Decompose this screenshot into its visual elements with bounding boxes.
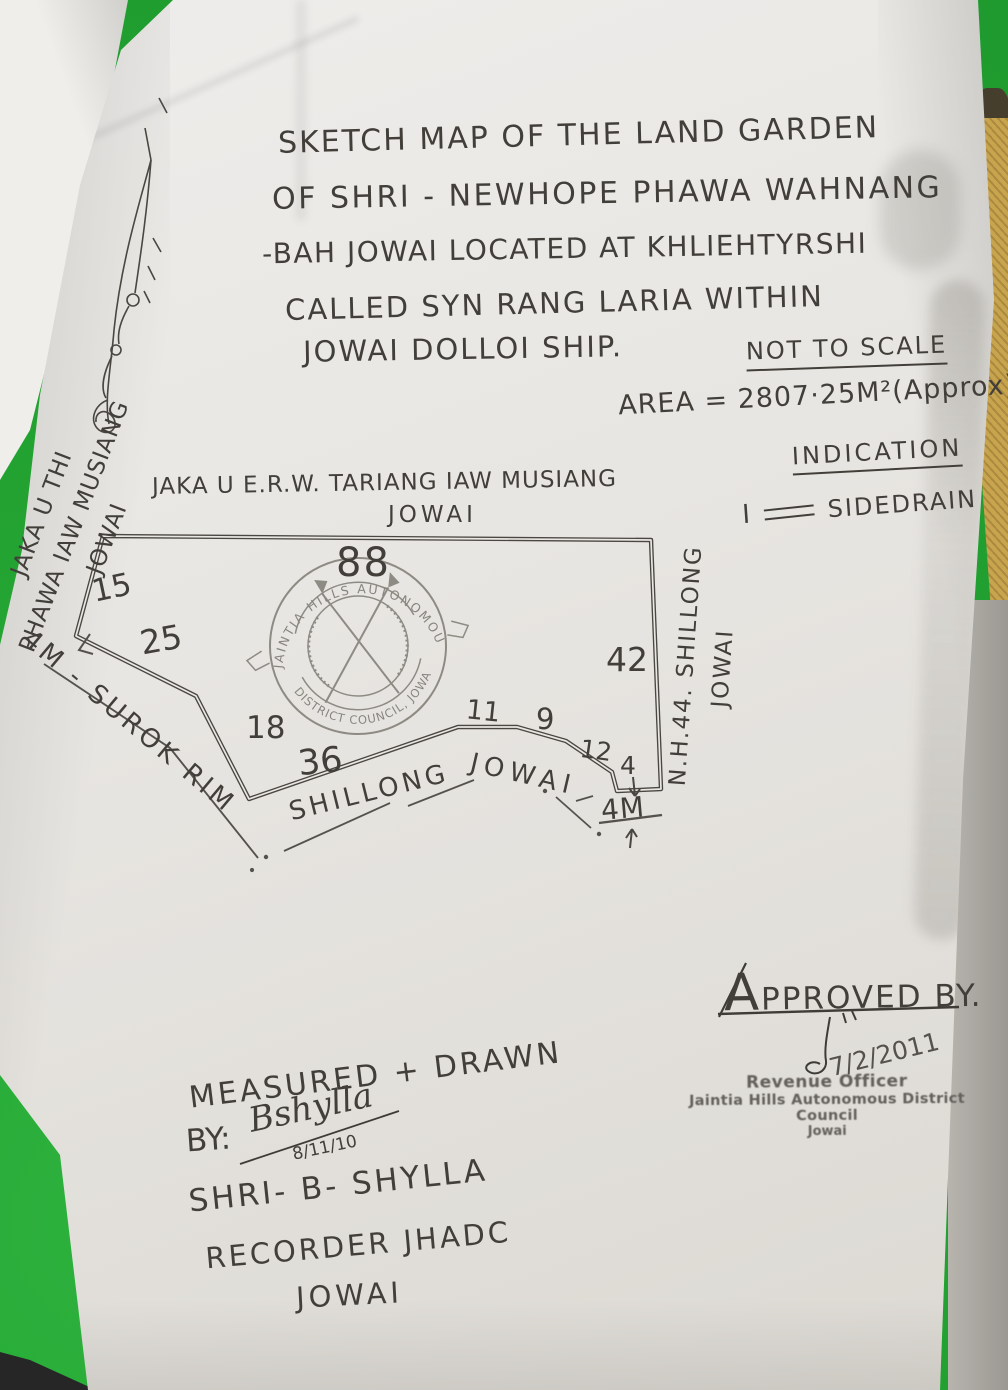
revenue-officer-stamp: Revenue Officer Jaintia Hills Autonomous…	[672, 1071, 983, 1141]
photo-of-sketch-map-document: JAINTIA HILLS AUTONOMOUS DISTRICT COUNCI…	[0, 0, 1008, 1390]
title-line-5: JOWAI DOLLOI SHIP.	[303, 329, 624, 369]
not-to-scale-note: NOT TO SCALE	[745, 330, 947, 371]
approved-by-heading: APPROVED BY.	[724, 960, 983, 1024]
sidedrain-symbol-icon	[763, 504, 814, 520]
measurement-bottom-a: 11	[464, 694, 501, 728]
measurement-bottom-c: 12	[578, 734, 614, 767]
measurement-bottom-d: 4	[620, 751, 636, 780]
measurer-place: JOWAI	[295, 1275, 403, 1315]
measurement-lower-left: 18	[246, 710, 285, 746]
measured-drawn-line2: BY:	[185, 1120, 232, 1159]
measurement-top: 88	[336, 540, 391, 586]
measurement-bottom-long: 36	[296, 740, 344, 784]
measurement-bottom-b: 9	[536, 702, 554, 736]
measurement-right: 42	[606, 640, 648, 679]
stamp-line3: Jowai	[672, 1123, 982, 1141]
north-boundary-label-line2: JOWAI	[388, 502, 477, 528]
stamp-line1: Revenue Officer	[672, 1071, 982, 1094]
measurement-upper-left: 25	[137, 617, 185, 663]
road-width-label: 4M	[600, 790, 647, 827]
stamp-line2: Jaintia Hills Autonomous District Counci…	[672, 1091, 982, 1126]
